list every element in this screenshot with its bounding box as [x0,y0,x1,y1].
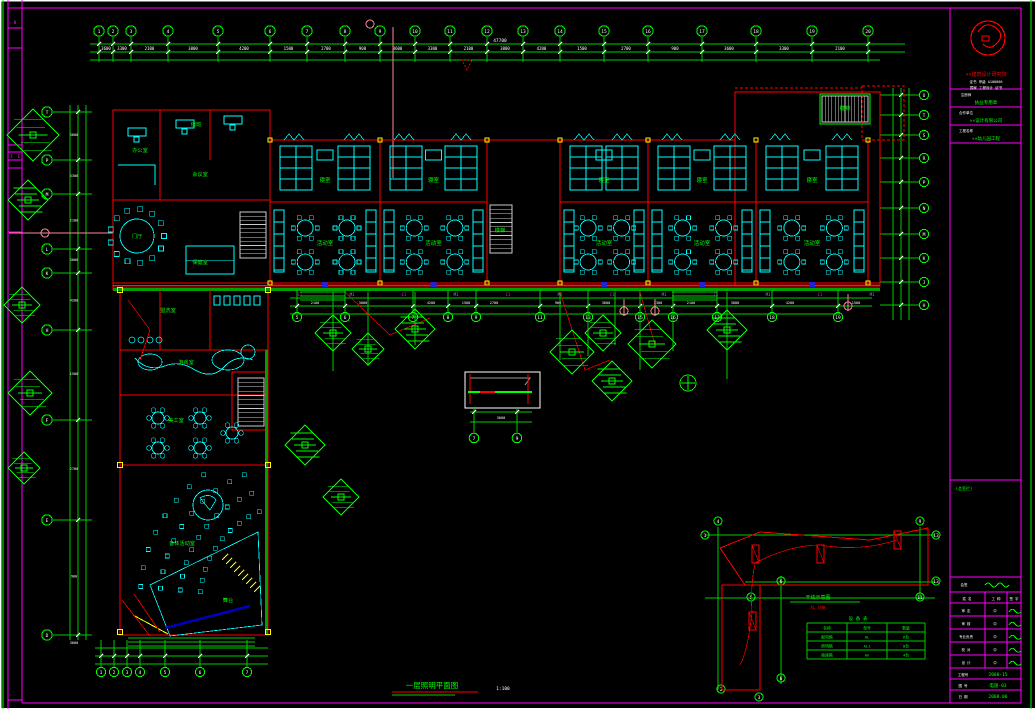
svg-text:2700: 2700 [621,46,631,51]
svg-text:M1: M1 [454,292,459,297]
svg-text:3600: 3600 [393,46,403,51]
svg-text:4200: 4200 [427,301,435,305]
svg-text:T: T [46,110,49,116]
svg-text:N: N [14,20,17,25]
svg-text:型号: 型号 [863,626,871,631]
svg-text:楼梯: 楼梯 [840,104,850,112]
svg-text:办公室: 办公室 [132,146,148,154]
svg-text:R: R [923,156,926,162]
svg-text:3300: 3300 [428,46,438,51]
svg-text:1: 1 [98,29,101,35]
svg-text:寝室: 寝室 [319,176,331,184]
landscape-trees [4,109,747,515]
svg-text:美工室: 美工室 [168,416,184,424]
svg-text:盥洗室: 盥洗室 [160,306,176,314]
svg-text:活动室: 活动室 [317,239,334,247]
svg-text:19: 19 [809,29,815,35]
svg-text:3000: 3000 [70,258,78,262]
svg-text:3300: 3300 [70,174,78,178]
svg-text:E: E [18,154,21,159]
svg-text:P: P [46,158,49,164]
svg-text:P: P [923,180,926,186]
svg-text:中: 中 [993,621,997,626]
svg-text:S: S [923,133,926,139]
svg-text:11: 11 [917,595,923,601]
svg-text:1500: 1500 [577,46,587,51]
svg-text:4: 4 [139,670,142,676]
svg-text:H: H [923,303,926,309]
svg-text:4200: 4200 [786,301,794,305]
svg-text:中: 中 [993,634,997,639]
dimension-grid: 1360023300321004300054200615007270089009… [9,20,929,677]
svg-text:M1: M1 [766,292,771,297]
svg-text:C1: C1 [610,292,615,297]
svg-text:47700: 47700 [493,38,507,44]
svg-text:12: 12 [484,29,490,35]
svg-text:3000: 3000 [188,46,198,51]
svg-text:4: 4 [167,29,170,35]
svg-text:寝室: 寝室 [598,176,610,184]
svg-text:900: 900 [671,46,679,51]
svg-text:2008-15: 2008-15 [989,672,1008,678]
svg-text:T: T [923,113,926,119]
svg-text:8: 8 [447,315,450,321]
svg-text:6台: 6台 [903,635,909,640]
svg-text:工程名称: 工程名称 [959,128,973,133]
svg-text:20: 20 [865,29,871,35]
floor-plan: 寝室活动室寝室活动室寝室活动室寝室活动室寝室活动室C1M1C1M1C1M1C1M… [108,86,904,646]
svg-text:一层照明平面图: 一层照明平面图 [406,681,459,690]
svg-text:C1: C1 [818,292,823,297]
svg-text:C1: C1 [506,292,511,297]
svg-text:寝室: 寝室 [806,176,818,184]
svg-text:900: 900 [71,575,77,579]
svg-text:M: M [46,192,49,198]
svg-text:活动室: 活动室 [694,239,711,247]
svg-text:活动室: 活动室 [804,239,821,247]
svg-text:1:100: 1:100 [496,686,510,692]
svg-text:18: 18 [769,315,775,321]
svg-text:寝室: 寝室 [696,176,708,184]
svg-text:楼梯: 楼梯 [495,226,505,234]
svg-text:舞台: 舞台 [223,596,233,604]
svg-text:××设计有限公司: ××设计有限公司 [970,117,1002,124]
svg-text:1: 1 [100,670,103,676]
svg-text:3: 3 [126,670,129,676]
svg-text:8: 8 [344,29,347,35]
svg-text:3600: 3600 [497,416,505,420]
svg-text:6: 6 [780,579,783,585]
svg-text:7: 7 [412,315,415,321]
svg-text:1500: 1500 [70,372,78,376]
svg-text:3000: 3000 [500,46,510,51]
svg-text:4200: 4200 [239,46,249,51]
title-block: ××建筑设计研究院证书 甲级 A100000国家 工程设计 证书注册师执业专用章… [950,8,1021,703]
svg-text:900: 900 [359,46,367,51]
svg-text:2: 2 [112,29,115,35]
svg-text:11: 11 [537,315,543,321]
svg-text:K: K [46,271,49,277]
svg-text:2: 2 [113,670,116,676]
svg-text:4台: 4台 [903,653,909,658]
svg-text:13: 13 [933,533,939,539]
svg-text:6: 6 [344,315,347,321]
svg-text:寝室: 寝室 [428,176,440,184]
svg-text:会签: 会签 [961,582,969,587]
svg-text:1500: 1500 [284,46,294,51]
svg-text:2100: 2100 [145,46,155,51]
svg-text:电施-03: 电施-03 [989,682,1006,689]
svg-text:18: 18 [753,29,759,35]
svg-text:4200: 4200 [70,299,78,303]
svg-text:F: F [46,418,49,424]
svg-text:审 核: 审 核 [961,621,971,626]
svg-text:1500: 1500 [462,301,470,305]
svg-text:配电箱: 配电箱 [821,635,833,640]
svg-text:数量: 数量 [902,626,910,631]
svg-text:N: N [923,206,926,212]
svg-text:中: 中 [993,647,997,652]
svg-text:19: 19 [835,315,841,321]
svg-text:AL: AL [865,635,870,640]
svg-text:L: L [46,247,49,253]
svg-text:H: H [46,328,49,334]
svg-text:设 计: 设 计 [961,660,971,665]
svg-text:13: 13 [933,579,939,585]
svg-text:2100: 2100 [835,46,845,51]
svg-text:专业负责: 专业负责 [959,634,973,639]
svg-text:M: M [923,232,926,238]
svg-text:K: K [923,256,926,262]
svg-text:AX: AX [865,653,870,658]
svg-text:2700: 2700 [490,301,498,305]
detail-drawing: 793600 [465,372,540,443]
svg-text:D: D [46,633,49,639]
svg-text:5: 5 [164,670,167,676]
svg-text:14: 14 [557,29,563,35]
svg-text:11: 11 [447,29,453,35]
svg-text:2100: 2100 [70,219,78,223]
svg-text:13: 13 [520,29,526,35]
svg-text:活动室: 活动室 [425,239,442,247]
svg-text:(会签栏): (会签栏) [956,485,973,491]
svg-text:3000: 3000 [731,301,739,305]
svg-text:中: 中 [993,660,997,665]
svg-text:6: 6 [199,670,202,676]
svg-text:门厅: 门厅 [132,232,142,240]
svg-text:3300: 3300 [779,46,789,51]
svg-text:3: 3 [130,29,133,35]
svg-text:××幼儿园工程: ××幼儿园工程 [972,135,1000,142]
svg-text:7: 7 [473,436,476,442]
svg-text:16: 16 [645,29,651,35]
svg-text:3600: 3600 [724,46,734,51]
svg-text:AL1: AL1 [864,644,872,649]
svg-text:J: J [923,280,926,286]
svg-text:17: 17 [699,29,705,35]
svg-text:1: 1 [704,533,707,539]
svg-text:10: 10 [412,29,418,35]
svg-text:2100: 2100 [687,301,695,305]
svg-text:4200: 4200 [537,46,547,51]
svg-text:2700: 2700 [70,467,78,471]
svg-text:工程号: 工程号 [958,672,969,677]
cad-sheet: FEN ××建筑设计研究院证书 甲级 A100000国家 工程设计 证书注册师执… [0,0,1036,709]
svg-text:审 定: 审 定 [961,608,971,613]
svg-text:干线示意图: 干线示意图 [805,594,830,601]
svg-text:值班: 值班 [191,120,201,128]
svg-text:签 字: 签 字 [1009,596,1019,601]
svg-text:15: 15 [601,29,607,35]
svg-text:活动室: 活动室 [596,239,613,247]
svg-text:9: 9 [516,436,519,442]
svg-text:5: 5 [217,29,220,35]
svg-text:6: 6 [780,676,783,682]
svg-text:7: 7 [246,670,249,676]
svg-text:2700: 2700 [321,46,331,51]
key-plan: 49113613115623干线示意图AL 总箱设 备 表名称型号数量配电箱AL… [701,517,940,701]
svg-text:姓 名: 姓 名 [962,596,971,601]
svg-text:U: U [923,93,926,99]
svg-text:2008.06: 2008.06 [989,694,1008,700]
svg-text:8台: 8台 [903,644,909,649]
svg-text:插座箱: 插座箱 [821,653,833,658]
svg-text:M1: M1 [350,292,355,297]
svg-text:AL 总箱: AL 总箱 [810,604,825,610]
svg-text:音体活动室: 音体活动室 [169,539,195,547]
svg-text:证书 甲级 A100000: 证书 甲级 A100000 [970,79,1003,84]
svg-text:M1: M1 [870,292,875,297]
svg-text:3600: 3600 [70,133,78,137]
svg-text:工 种: 工 种 [991,596,1001,601]
drawing-title: 一层照明平面图1:100 [392,681,510,695]
svg-text:4: 4 [717,519,720,525]
svg-text:E: E [46,518,49,524]
svg-text:设 备 表: 设 备 表 [849,615,868,622]
svg-text:9: 9 [475,315,478,321]
svg-text:3000: 3000 [359,301,367,305]
svg-text:游戏室: 游戏室 [178,358,194,366]
svg-text:C1: C1 [402,292,407,297]
svg-text:国家 工程设计 证书: 国家 工程设计 证书 [970,85,1003,90]
svg-text:F: F [11,154,14,159]
svg-text:5: 5 [296,315,299,321]
svg-text:会议室: 会议室 [192,170,208,178]
svg-text:M1: M1 [662,292,667,297]
svg-text:照明箱: 照明箱 [821,644,833,649]
svg-text:2100: 2100 [464,46,474,51]
svg-text:图 号: 图 号 [958,683,968,688]
svg-text:3600: 3600 [70,641,78,645]
svg-text:执业专用章: 执业专用章 [975,99,998,106]
svg-text:7: 7 [306,29,309,35]
svg-text:日 期: 日 期 [958,694,968,699]
svg-text:3600: 3600 [101,46,111,51]
svg-text:3600: 3600 [602,301,610,305]
svg-text:6: 6 [269,29,272,35]
svg-text:注册师: 注册师 [961,92,972,97]
svg-text:1500: 1500 [852,301,860,305]
svg-text:3300: 3300 [117,46,127,51]
svg-text:2100: 2100 [311,301,319,305]
svg-text:名称: 名称 [823,626,831,631]
svg-text:保健室: 保健室 [192,258,208,266]
svg-text:9: 9 [379,29,382,35]
svg-text:中: 中 [993,608,997,613]
svg-text:9: 9 [919,519,922,525]
svg-text:校 对: 校 对 [961,647,971,652]
svg-text:合作单位: 合作单位 [959,110,973,115]
cad-canvas: FEN ××建筑设计研究院证书 甲级 A100000国家 工程设计 证书注册师执… [0,0,1036,709]
svg-text:3: 3 [758,695,761,701]
svg-text:××建筑设计研究院: ××建筑设计研究院 [965,71,1006,78]
